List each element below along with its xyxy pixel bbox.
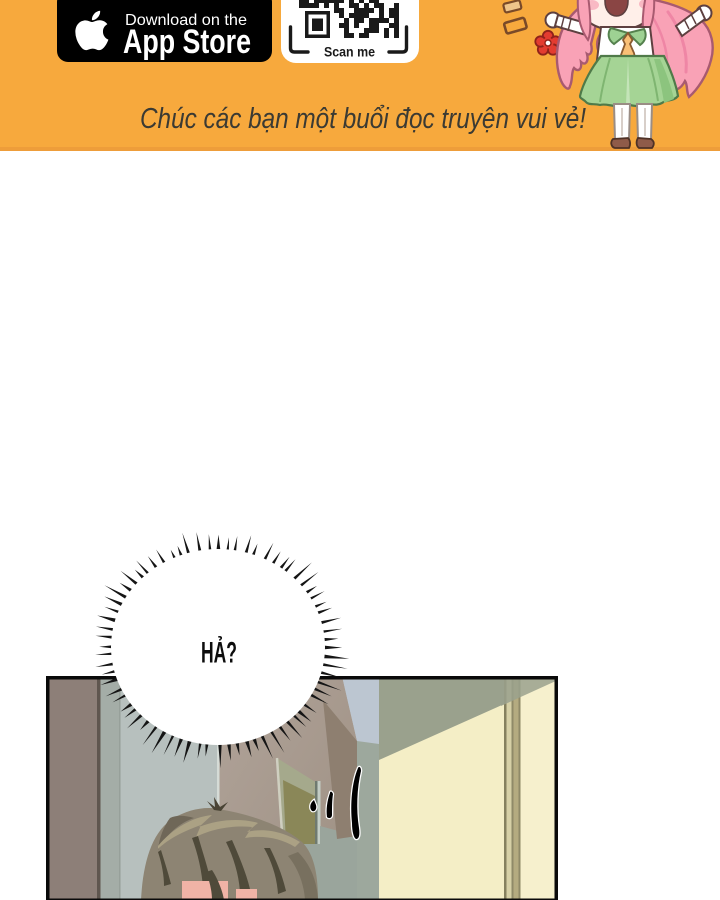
svg-text:HẢ?: HẢ?: [201, 636, 237, 670]
svg-text:Chúc các bạn một buổi đọc truy: Chúc các bạn một buổi đọc truyện vui vẻ!: [140, 103, 586, 135]
svg-text:App Store: App Store: [123, 23, 251, 61]
svg-text:Scan me: Scan me: [324, 45, 375, 60]
